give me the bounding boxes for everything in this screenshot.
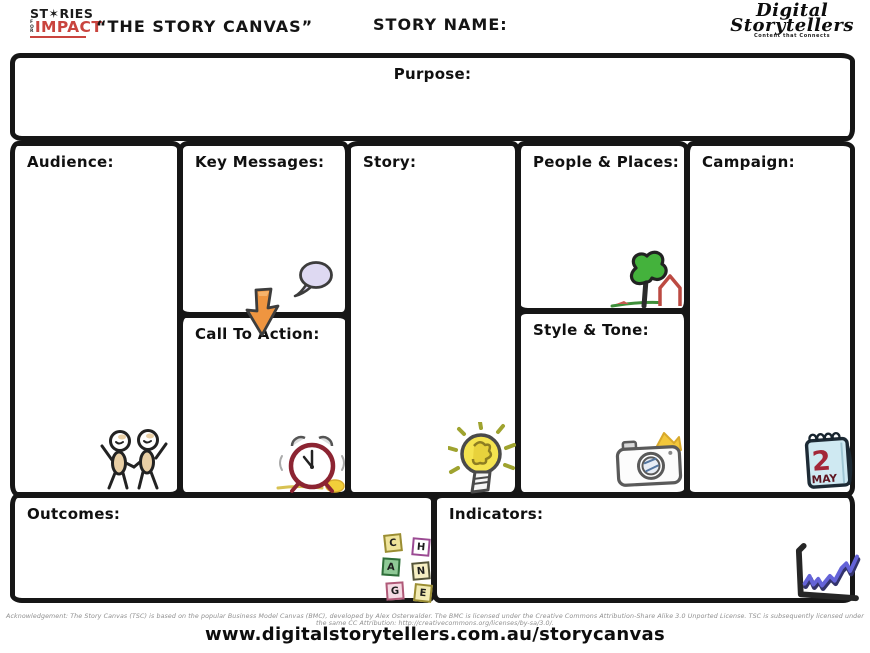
change-block-c: C (383, 533, 403, 553)
digital-logo-line2: Storytellers (730, 18, 854, 33)
indicators-label: Indicators: (437, 498, 850, 523)
down-arrow-icon (241, 287, 287, 339)
campaign-label: Campaign: (690, 146, 850, 171)
speech-bubble-icon (293, 260, 335, 300)
style-tone-label: Style & Tone: (521, 314, 684, 339)
digital-storytellers-logo: Digital Storytellers Content that Connec… (730, 3, 854, 40)
people-places-label: People & Places: (521, 146, 684, 171)
lightbulb-icon (448, 422, 516, 498)
stories-for-impact-logo: ST✶RIES FOR IMPACT (30, 7, 100, 38)
line-graph-icon (788, 542, 862, 604)
calendar-icon: 2 MAY (798, 424, 858, 494)
change-blocks-icon: C H A N G E (378, 532, 442, 606)
stories-logo-for: FOR (30, 21, 34, 35)
people-icon (98, 426, 170, 492)
purpose-box: Purpose: (10, 53, 855, 141)
stories-logo-line2: IMPACT (35, 20, 102, 35)
change-block-e: E (413, 583, 433, 603)
story-name-label: STORY NAME: (373, 15, 508, 34)
story-label: Story: (351, 146, 515, 171)
key-messages-label: Key Messages: (183, 146, 345, 171)
tree-house-icon (608, 246, 684, 312)
change-block-h: H (411, 537, 431, 557)
camera-icon (614, 428, 690, 490)
change-block-n: N (411, 561, 431, 581)
alarm-clock-icon (276, 430, 348, 494)
change-block-g: G (385, 581, 404, 600)
change-block-a: A (381, 557, 400, 576)
outcomes-box: Outcomes: (10, 493, 436, 603)
purpose-label: Purpose: (15, 58, 850, 83)
audience-label: Audience: (15, 146, 177, 171)
calendar-month: MAY (811, 472, 838, 487)
canvas-title: “THE STORY CANVAS” (96, 17, 313, 36)
website-url: www.digitalstorytellers.com.au/storycanv… (0, 624, 870, 645)
story-canvas-page: ST✶RIES FOR IMPACT “THE STORY CANVAS” ST… (0, 0, 870, 653)
outcomes-label: Outcomes: (15, 498, 431, 523)
